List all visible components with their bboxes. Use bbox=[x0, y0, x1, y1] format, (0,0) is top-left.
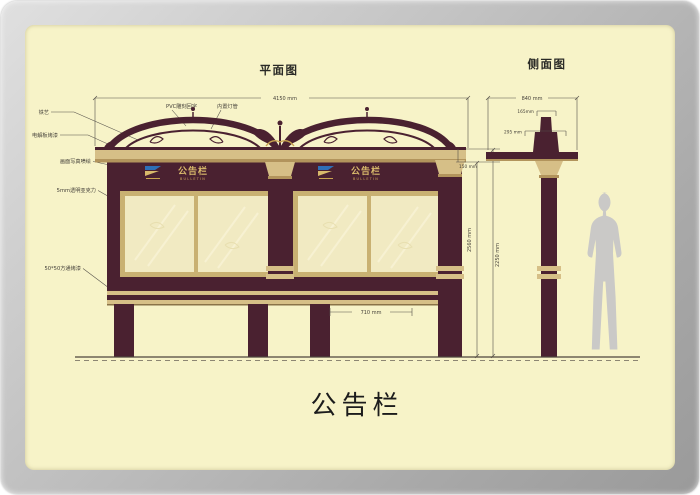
roof-center-ornament bbox=[252, 121, 308, 149]
iron-roof-arches bbox=[104, 107, 456, 150]
annotation-lamp: 内置灯管 bbox=[217, 102, 238, 110]
side-view-drawing: 840 mm 165mm 295 mm bbox=[486, 96, 579, 357]
bottom-rail bbox=[107, 291, 453, 306]
drawing-canvas: 平面图 侧面图 4150 mm PVC雕刻回字 内置灯管 铁艺 bbox=[0, 0, 700, 495]
height-dimensions: 150 mm 2560 mm 2250 mm bbox=[456, 148, 501, 358]
annotation-square-tube: 50*50方通烤漆 bbox=[44, 264, 81, 272]
side-width-label: 840 mm bbox=[522, 96, 543, 102]
cornice-height-label: 150 mm bbox=[459, 164, 477, 170]
annotation-inkjet-print: 画面写真喷绘 bbox=[60, 157, 91, 165]
board-title-left: 公告栏 bbox=[178, 165, 208, 177]
ground-line bbox=[75, 357, 640, 361]
annotation-panel-paint: 电解板烤漆 bbox=[32, 131, 58, 139]
design-sheet: 平面图 侧面图 4150 mm PVC雕刻回字 内置灯管 铁艺 bbox=[0, 0, 700, 495]
side-cap-label: 295 mm bbox=[504, 130, 522, 136]
side-view-title: 侧面图 bbox=[528, 57, 567, 71]
total-width-label: 4150 mm bbox=[273, 96, 297, 102]
cornice bbox=[95, 147, 466, 163]
annotation-acrylic: 5mm透明亚克力 bbox=[57, 186, 96, 194]
sheet-title: 公告栏 bbox=[310, 391, 403, 421]
height-outer-label: 2250 mm bbox=[495, 243, 501, 267]
side-roof-profile bbox=[533, 117, 559, 152]
center-pilaster bbox=[265, 162, 295, 291]
annotation-iron-art: 铁艺 bbox=[39, 108, 49, 116]
height-inner-label: 2560 mm bbox=[467, 228, 473, 252]
board-title-right: 公告栏 bbox=[351, 165, 381, 177]
plan-view-drawing: 4150 mm PVC雕刻回字 内置灯管 铁艺 电解板烤漆 画面写真喷绘 5mm… bbox=[32, 96, 501, 358]
dimension-side-width: 840 mm bbox=[486, 96, 579, 150]
display-window-right bbox=[293, 191, 446, 277]
dimension-side-top: 165mm bbox=[517, 109, 556, 116]
board-subtitle-left: BULLETIN bbox=[180, 177, 206, 181]
right-pilaster bbox=[435, 160, 465, 357]
dimension-leg-span: 710 mm bbox=[330, 308, 412, 316]
human-silhouette bbox=[588, 192, 622, 349]
plan-view-title: 平面图 bbox=[260, 63, 299, 77]
side-top-label: 165mm bbox=[517, 109, 534, 115]
board-subtitle-right: BULLETIN bbox=[353, 177, 379, 181]
display-window-left bbox=[120, 191, 273, 277]
support-legs bbox=[114, 304, 330, 357]
leg-span-label: 710 mm bbox=[361, 310, 382, 316]
